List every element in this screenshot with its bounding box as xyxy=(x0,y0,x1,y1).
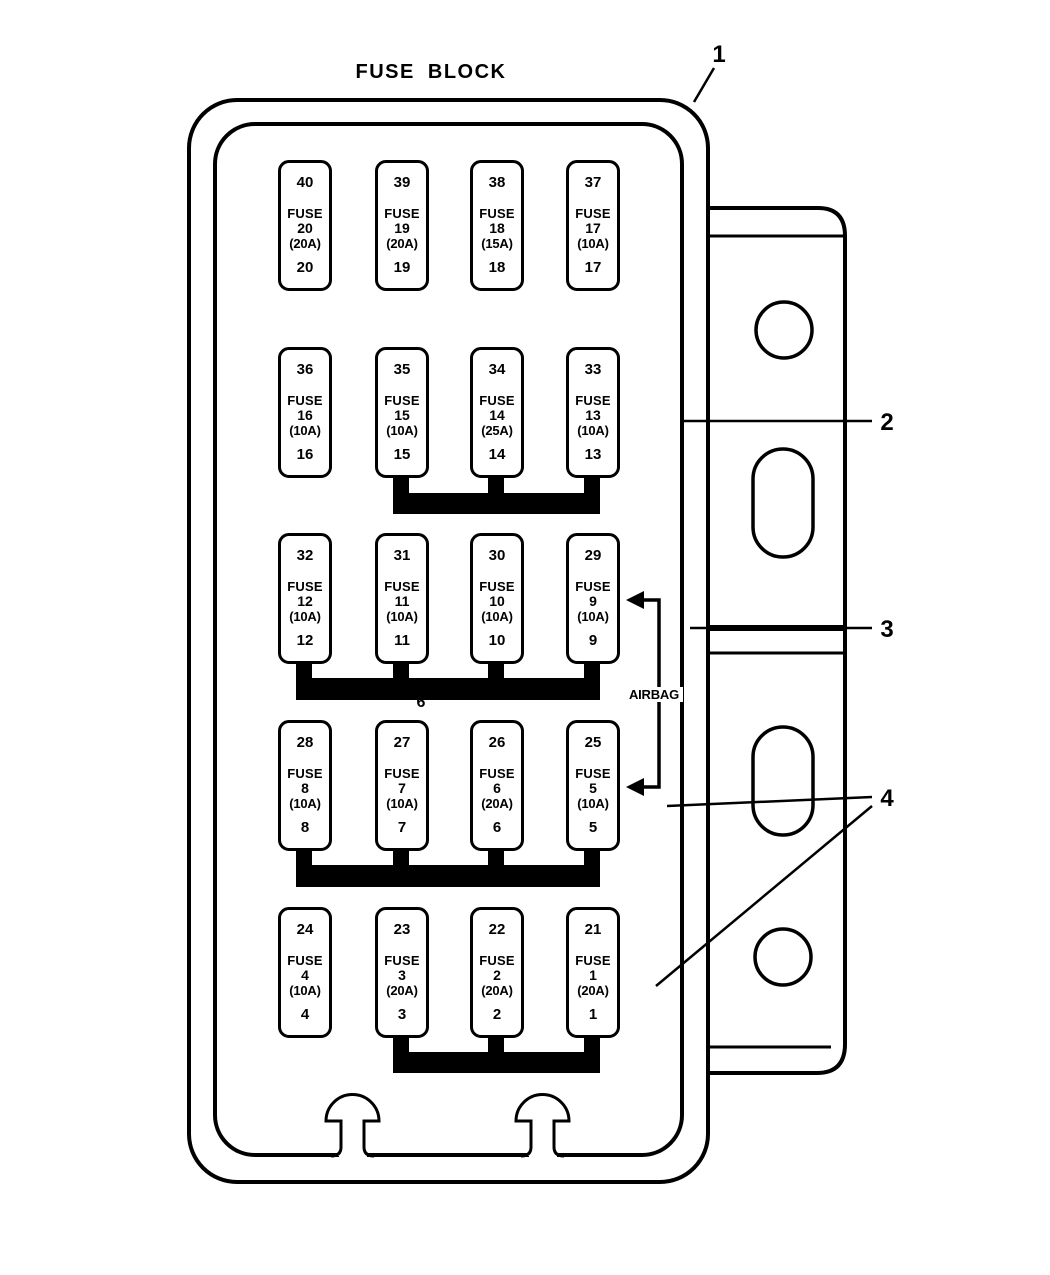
fuse-position: 17 xyxy=(569,260,617,276)
fuse-position: 4 xyxy=(281,1007,329,1023)
fuse-position: 14 xyxy=(473,447,521,463)
cavity-number: 38 xyxy=(473,175,521,191)
fuse-label: FUSE xyxy=(378,953,426,968)
fuse-number: 19 xyxy=(378,221,426,236)
fuse-position: 16 xyxy=(281,447,329,463)
fuse-cavity-38: 38 FUSE 18 (15A) 18 xyxy=(470,160,524,291)
fuse-amps: (10A) xyxy=(473,609,521,624)
fuse-cavity-35: 35 FUSE 15 (10A) 15 xyxy=(375,347,429,478)
fuse-amps: (20A) xyxy=(378,236,426,251)
outer-shell xyxy=(189,100,708,1182)
fuse-label: FUSE xyxy=(569,393,617,408)
fuse-amps: (10A) xyxy=(569,236,617,251)
bracket-hole-round-top xyxy=(756,302,812,358)
fuse-position: 5 xyxy=(569,820,617,836)
callout-4: 4 xyxy=(874,785,900,813)
fuse-label: FUSE xyxy=(473,206,521,221)
fuse-number: 8 xyxy=(281,781,329,796)
airbag-label: AIRBAG xyxy=(625,687,683,702)
fuse-label: FUSE xyxy=(569,206,617,221)
fuse-position: 1 xyxy=(569,1007,617,1023)
cavity-number: 31 xyxy=(378,548,426,564)
fuse-position: 11 xyxy=(378,633,426,649)
cavity-number: 34 xyxy=(473,362,521,378)
fuse-label: FUSE xyxy=(569,579,617,594)
fuse-amps: (20A) xyxy=(569,983,617,998)
cavity-number: 29 xyxy=(569,548,617,564)
fuse-label: FUSE xyxy=(378,579,426,594)
callout-2: 2 xyxy=(874,409,900,437)
mounting-bracket xyxy=(709,208,845,1073)
cavity-number: 30 xyxy=(473,548,521,564)
fuse-label: FUSE xyxy=(473,953,521,968)
fuse-label: FUSE xyxy=(569,953,617,968)
fuse-label: FUSE xyxy=(378,766,426,781)
cavity-number: 21 xyxy=(569,922,617,938)
fuse-amps: (10A) xyxy=(569,609,617,624)
fuse-amps: (20A) xyxy=(473,796,521,811)
cavity-number: 24 xyxy=(281,922,329,938)
fuse-number: 11 xyxy=(378,594,426,609)
fuse-block-body xyxy=(189,100,708,1182)
fuse-cavity-21: 21 FUSE 1 (20A) 1 xyxy=(566,907,620,1038)
fuse-position: 2 xyxy=(473,1007,521,1023)
fuse-cavity-28: 28 FUSE 8 (10A) 8 xyxy=(278,720,332,851)
callout-3: 3 xyxy=(874,616,900,644)
fuse-position: 6 xyxy=(473,820,521,836)
cavity-number: 39 xyxy=(378,175,426,191)
fuse-amps: (10A) xyxy=(281,609,329,624)
bus-bar-6-label: 6 xyxy=(407,694,435,712)
fuse-position: 9 xyxy=(569,633,617,649)
fuse-number: 5 xyxy=(569,781,617,796)
fuse-cavity-25: 25 FUSE 5 (10A) 5 xyxy=(566,720,620,851)
fuse-number: 16 xyxy=(281,408,329,423)
leader-1 xyxy=(694,68,714,102)
fuse-number: 18 xyxy=(473,221,521,236)
fuse-label: FUSE xyxy=(281,953,329,968)
fuse-amps: (10A) xyxy=(281,983,329,998)
fuse-position: 8 xyxy=(281,820,329,836)
fuse-amps: (10A) xyxy=(378,796,426,811)
fuse-number: 3 xyxy=(378,968,426,983)
fuse-position: 18 xyxy=(473,260,521,276)
fuse-position: 7 xyxy=(378,820,426,836)
fuse-number: 20 xyxy=(281,221,329,236)
fuse-position: 3 xyxy=(378,1007,426,1023)
fuse-number: 10 xyxy=(473,594,521,609)
fuse-cavity-24: 24 FUSE 4 (10A) 4 xyxy=(278,907,332,1038)
fuse-number: 2 xyxy=(473,968,521,983)
cavity-number: 35 xyxy=(378,362,426,378)
fuse-position: 20 xyxy=(281,260,329,276)
cavity-number: 27 xyxy=(378,735,426,751)
fuse-position: 13 xyxy=(569,447,617,463)
fuse-number: 14 xyxy=(473,408,521,423)
fuse-label: FUSE xyxy=(473,393,521,408)
fuse-number: 15 xyxy=(378,408,426,423)
fuse-label: FUSE xyxy=(473,766,521,781)
fuse-cavity-36: 36 FUSE 16 (10A) 16 xyxy=(278,347,332,478)
fuse-amps: (10A) xyxy=(281,423,329,438)
fuse-label: FUSE xyxy=(281,393,329,408)
bracket-slot-bottom xyxy=(753,727,813,835)
diagram-title: FUSE BLOCK xyxy=(331,61,531,84)
fuse-cavity-32: 32 FUSE 12 (10A) 12 xyxy=(278,533,332,664)
fuse-cavity-37: 37 FUSE 17 (10A) 17 xyxy=(566,160,620,291)
fuse-block-diagram: FUSE BLOCK 40 FUSE 20 (20A) 20 39 FUSE 1… xyxy=(0,0,1050,1275)
fuse-label: FUSE xyxy=(378,206,426,221)
fuse-number: 13 xyxy=(569,408,617,423)
fuse-amps: (10A) xyxy=(569,796,617,811)
fuse-cavity-31: 31 FUSE 11 (10A) 11 xyxy=(375,533,429,664)
fuse-cavity-40: 40 FUSE 20 (20A) 20 xyxy=(278,160,332,291)
fuse-amps: (20A) xyxy=(378,983,426,998)
fuse-amps: (20A) xyxy=(473,983,521,998)
fuse-label: FUSE xyxy=(281,206,329,221)
fuse-cavity-26: 26 FUSE 6 (20A) 6 xyxy=(470,720,524,851)
cavity-number: 40 xyxy=(281,175,329,191)
fuse-cavity-23: 23 FUSE 3 (20A) 3 xyxy=(375,907,429,1038)
bracket-slot-top xyxy=(753,449,813,557)
cavity-number: 33 xyxy=(569,362,617,378)
fuse-cavity-22: 22 FUSE 2 (20A) 2 xyxy=(470,907,524,1038)
fuse-number: 4 xyxy=(281,968,329,983)
fuse-cavity-33: 33 FUSE 13 (10A) 13 xyxy=(566,347,620,478)
fuse-cavity-30: 30 FUSE 10 (10A) 10 xyxy=(470,533,524,664)
fuse-position: 12 xyxy=(281,633,329,649)
fuse-label: FUSE xyxy=(281,766,329,781)
callout-1: 1 xyxy=(706,41,732,69)
cavity-number: 26 xyxy=(473,735,521,751)
fuse-number: 7 xyxy=(378,781,426,796)
cavity-number: 25 xyxy=(569,735,617,751)
fuse-cavity-39: 39 FUSE 19 (20A) 19 xyxy=(375,160,429,291)
fuse-amps: (20A) xyxy=(281,236,329,251)
fuse-label: FUSE xyxy=(378,393,426,408)
fuse-label: FUSE xyxy=(569,766,617,781)
fuse-position: 19 xyxy=(378,260,426,276)
fuse-number: 17 xyxy=(569,221,617,236)
bracket-hole-round-bottom xyxy=(755,929,811,985)
cavity-number: 22 xyxy=(473,922,521,938)
cavity-number: 28 xyxy=(281,735,329,751)
fuse-position: 15 xyxy=(378,447,426,463)
fuse-cavity-34: 34 FUSE 14 (25A) 14 xyxy=(470,347,524,478)
fuse-number: 9 xyxy=(569,594,617,609)
fuse-amps: (10A) xyxy=(378,423,426,438)
fuse-cavity-27: 27 FUSE 7 (10A) 7 xyxy=(375,720,429,851)
cavity-number: 36 xyxy=(281,362,329,378)
cavity-number: 32 xyxy=(281,548,329,564)
cavity-number: 23 xyxy=(378,922,426,938)
fuse-amps: (10A) xyxy=(569,423,617,438)
fuse-amps: (10A) xyxy=(378,609,426,624)
fuse-number: 6 xyxy=(473,781,521,796)
fuse-number: 12 xyxy=(281,594,329,609)
fuse-amps: (10A) xyxy=(281,796,329,811)
fuse-amps: (15A) xyxy=(473,236,521,251)
fuse-amps: (25A) xyxy=(473,423,521,438)
cavity-number: 37 xyxy=(569,175,617,191)
fuse-label: FUSE xyxy=(473,579,521,594)
fuse-position: 10 xyxy=(473,633,521,649)
fuse-number: 1 xyxy=(569,968,617,983)
fuse-label: FUSE xyxy=(281,579,329,594)
fuse-cavity-29: 29 FUSE 9 (10A) 9 xyxy=(566,533,620,664)
